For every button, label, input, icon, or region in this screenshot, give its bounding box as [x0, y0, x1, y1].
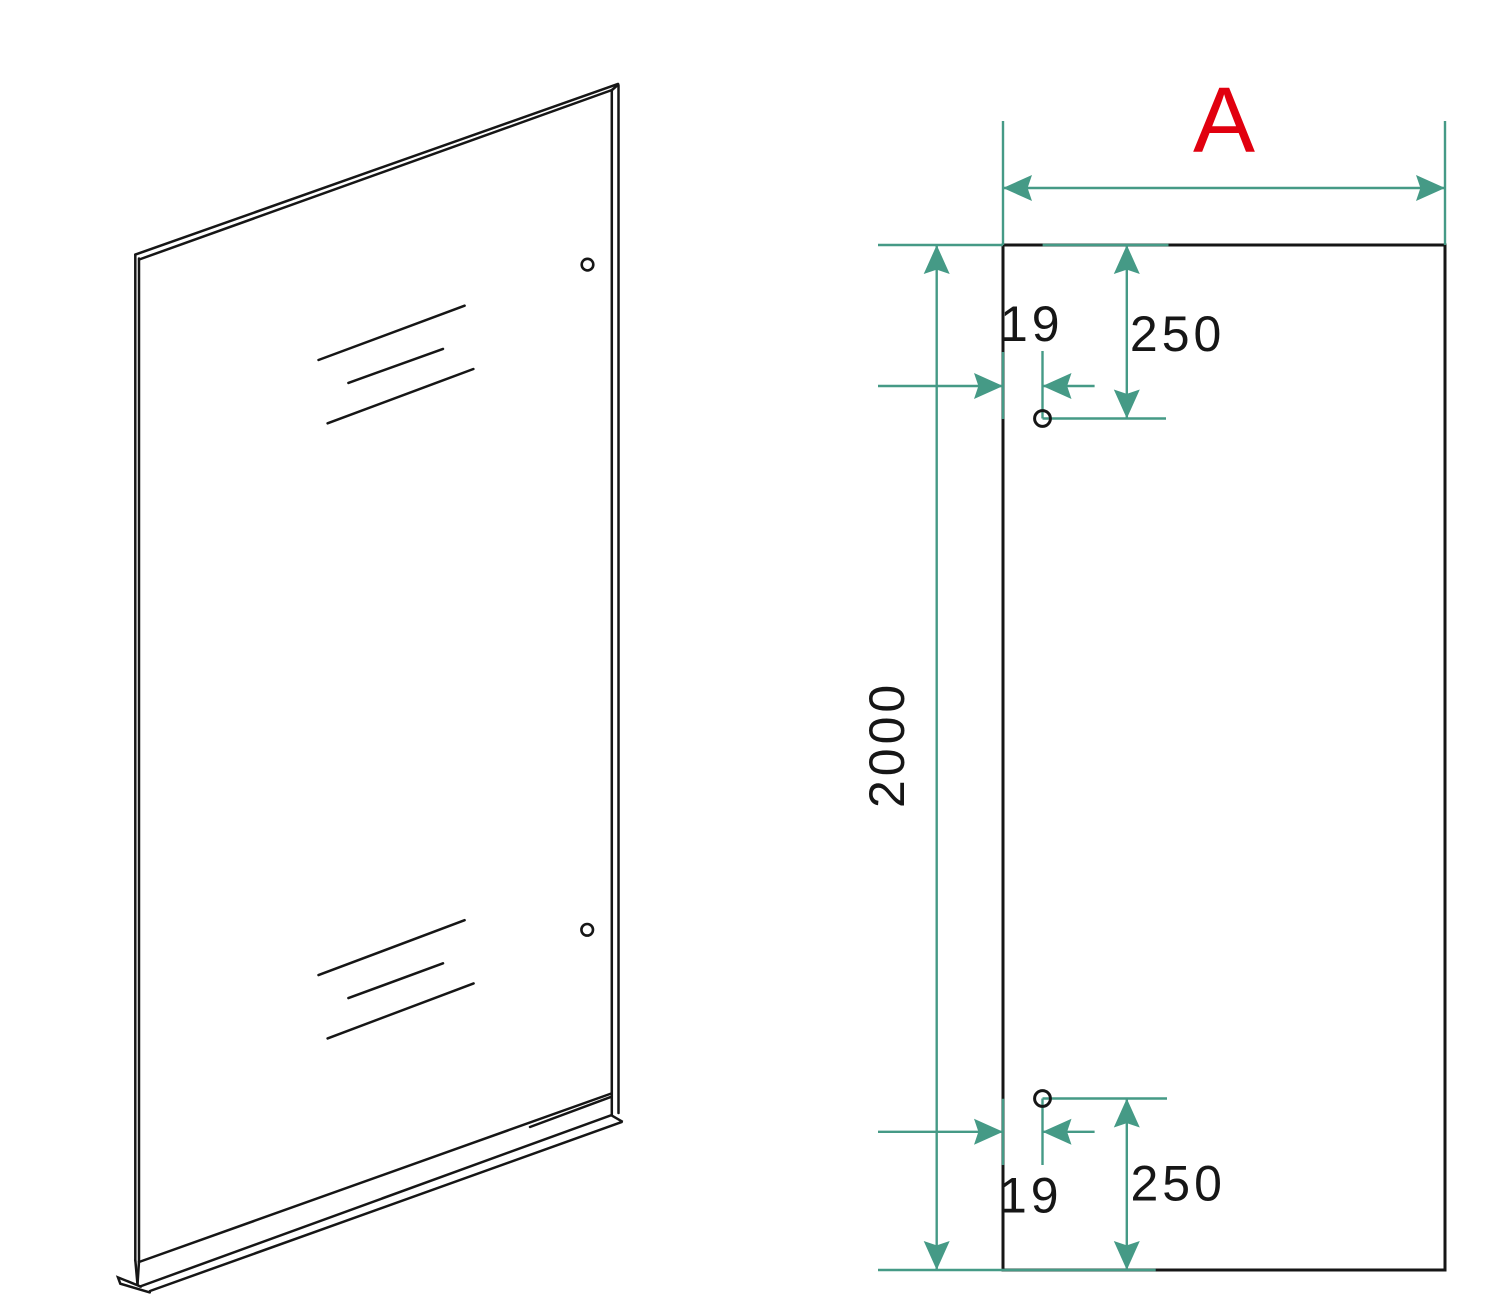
svg-text:250: 250: [1130, 306, 1225, 362]
svg-text:19: 19: [1000, 296, 1064, 352]
svg-text:2000: 2000: [859, 681, 915, 808]
svg-text:A: A: [1193, 68, 1255, 172]
svg-text:250: 250: [1131, 1156, 1226, 1212]
svg-text:19: 19: [999, 1168, 1063, 1224]
